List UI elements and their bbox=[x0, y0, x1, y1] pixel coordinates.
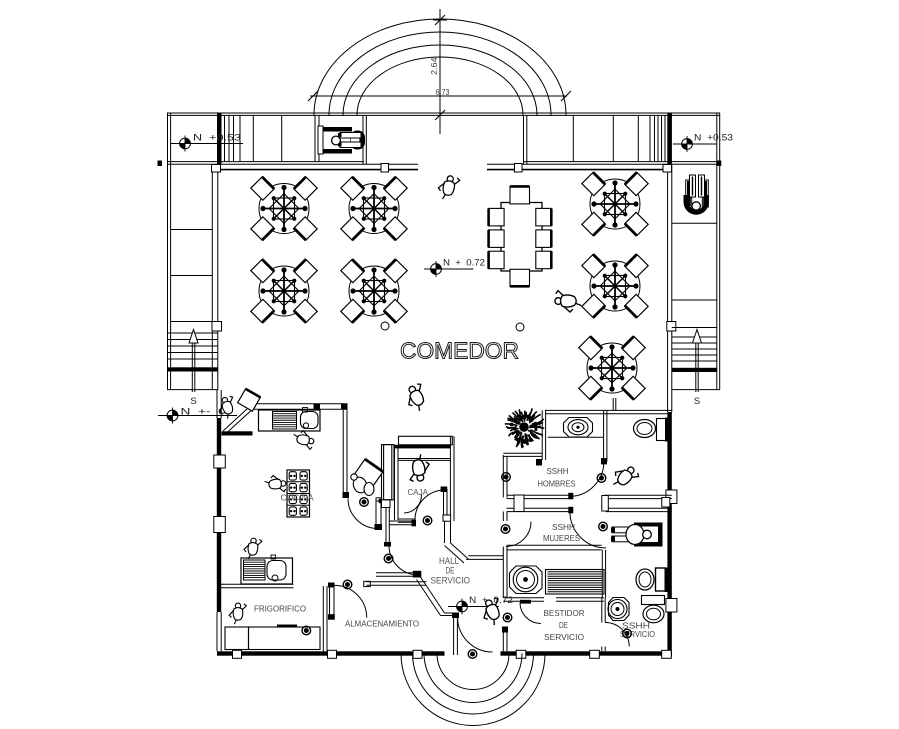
svg-text:N +0.53: N +0.53 bbox=[193, 133, 241, 144]
svg-text:SERVICIO: SERVICIO bbox=[431, 576, 471, 586]
svg-text:COMEDOR: COMEDOR bbox=[400, 338, 519, 364]
svg-text:HALL: HALL bbox=[439, 556, 459, 566]
svg-text:6.73: 6.73 bbox=[436, 87, 450, 97]
svg-text:S: S bbox=[190, 396, 196, 407]
svg-text:SERVICIO: SERVICIO bbox=[544, 632, 585, 642]
svg-text:MUJERES: MUJERES bbox=[543, 533, 580, 543]
svg-text:FRIGORIFICO: FRIGORIFICO bbox=[254, 605, 306, 614]
svg-text:CAJA: CAJA bbox=[408, 487, 429, 497]
svg-text:SSHH: SSHH bbox=[547, 466, 569, 476]
svg-text:DE: DE bbox=[446, 566, 455, 576]
svg-text:N + 0.72: N + 0.72 bbox=[443, 258, 485, 269]
svg-text:DE: DE bbox=[559, 620, 568, 630]
svg-text:COCINA: COCINA bbox=[281, 493, 314, 503]
svg-text:N +0.53: N +0.53 bbox=[694, 133, 733, 144]
svg-text:HOMBRES: HOMBRES bbox=[538, 479, 576, 489]
svg-text:S: S bbox=[694, 396, 700, 407]
svg-text:SSHH: SSHH bbox=[552, 522, 575, 532]
svg-text:BESTIDOR: BESTIDOR bbox=[544, 608, 585, 618]
svg-text:ALMACENAMIENTO: ALMACENAMIENTO bbox=[345, 620, 419, 629]
svg-text:2.64: 2.64 bbox=[429, 57, 439, 75]
